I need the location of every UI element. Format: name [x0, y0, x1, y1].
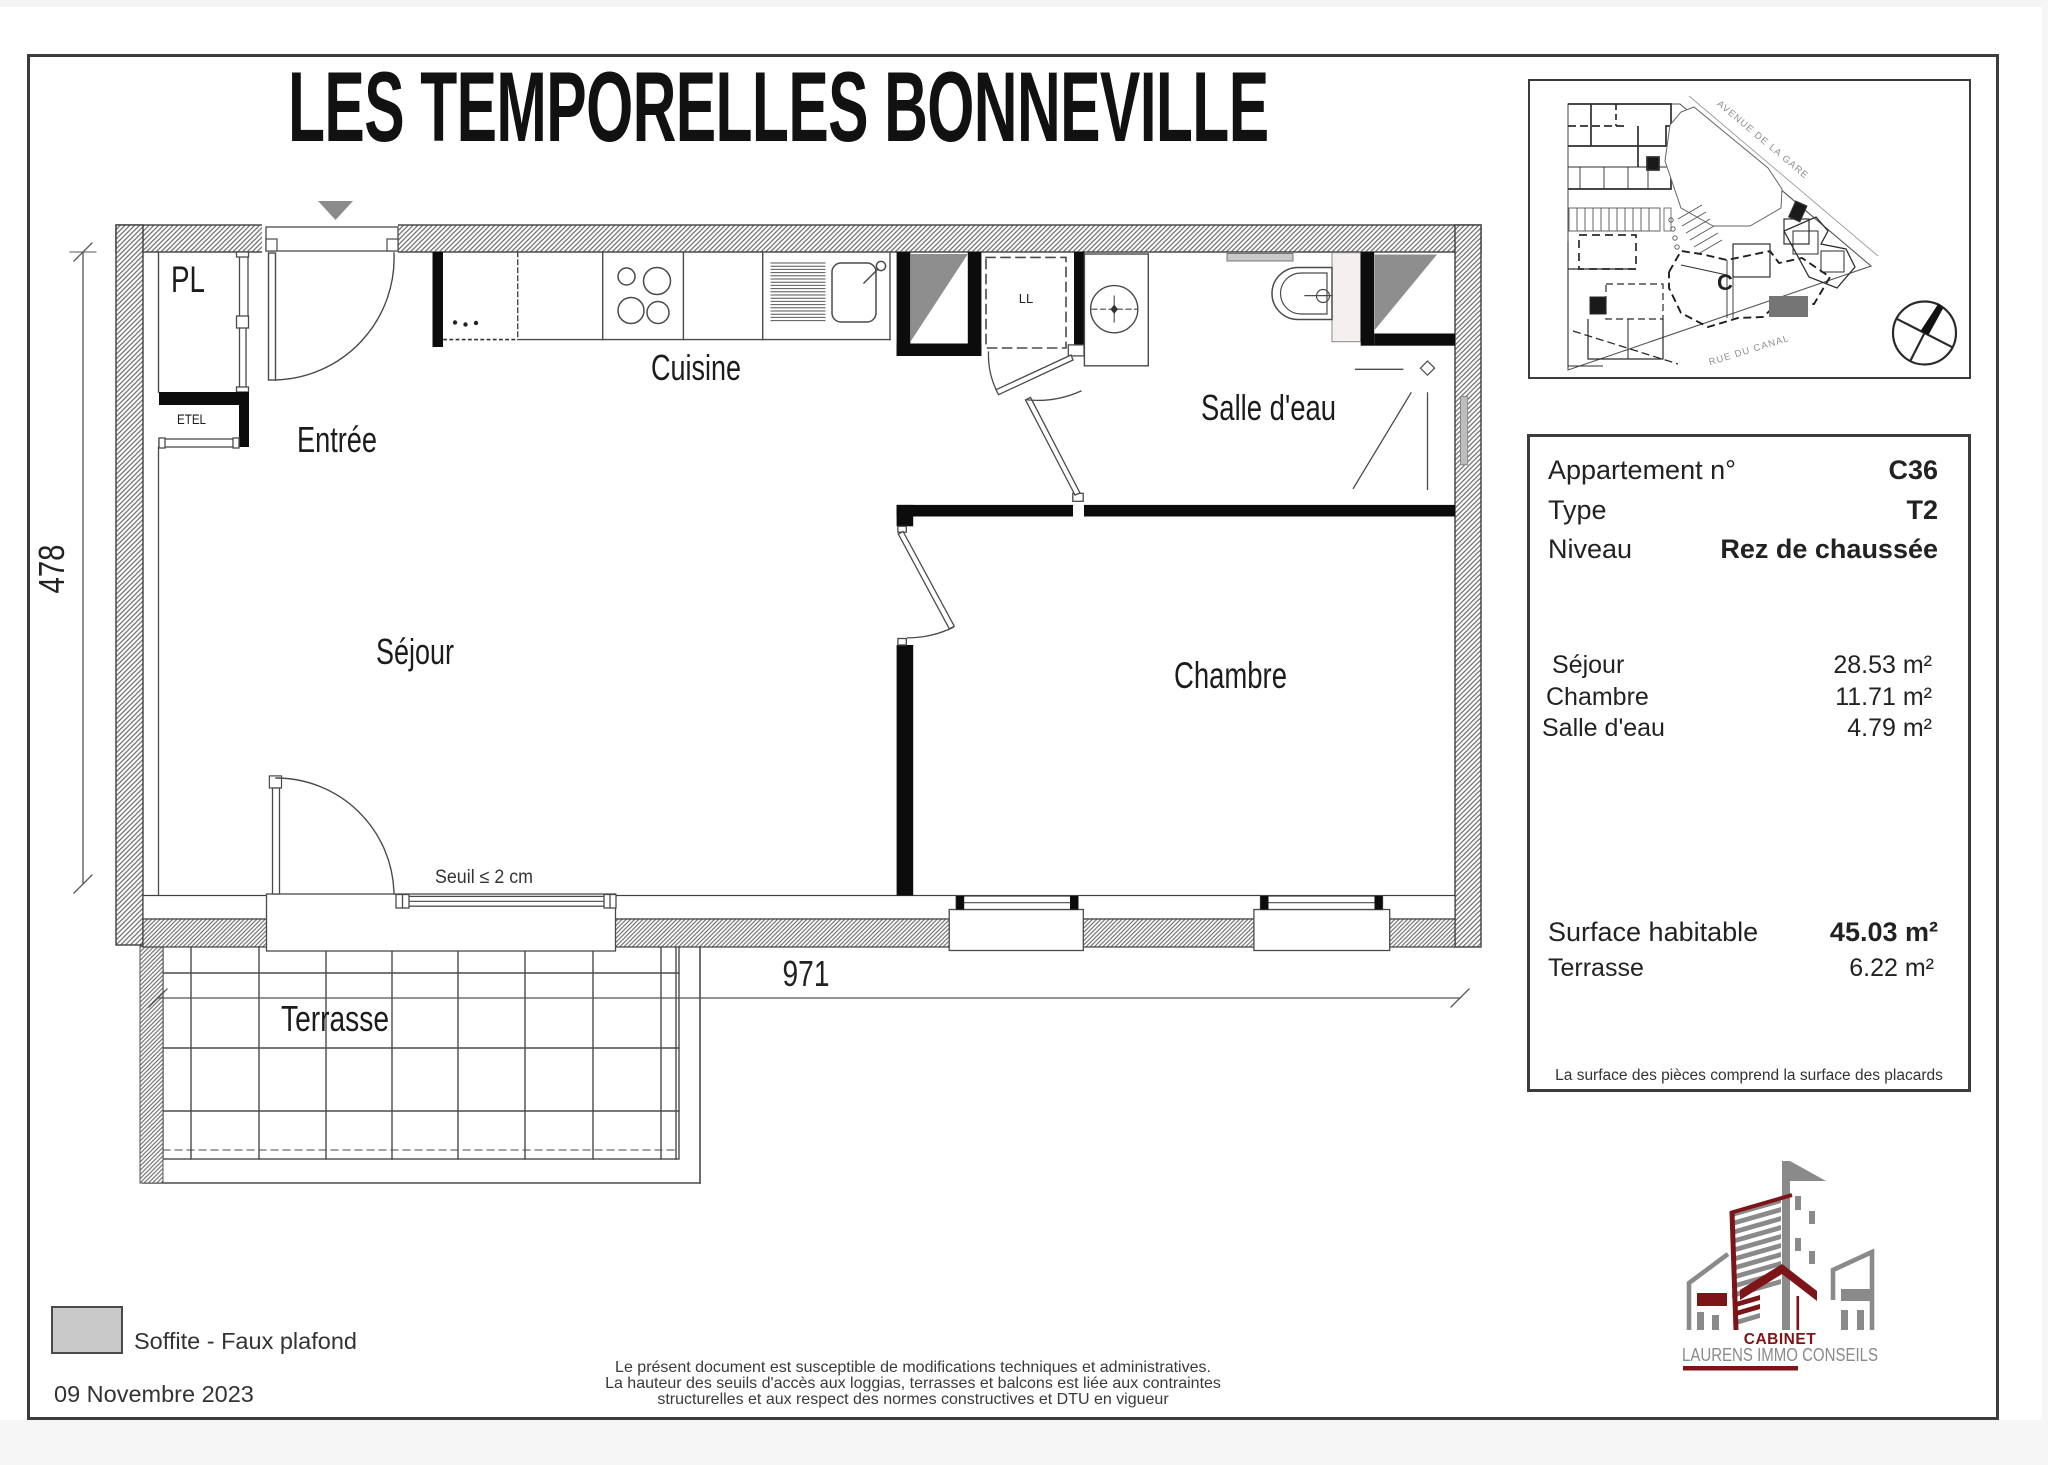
svg-text:Salle d'eau: Salle d'eau — [1201, 387, 1336, 428]
svg-text:Chambre: Chambre — [1174, 655, 1287, 696]
svg-text:ETEL: ETEL — [177, 411, 206, 427]
svg-text:Séjour: Séjour — [376, 631, 454, 672]
svg-text:LAURENS IMMO CONSEILS: LAURENS IMMO CONSEILS — [1682, 1345, 1878, 1365]
svg-text:478: 478 — [31, 545, 72, 594]
svg-text:Entrée: Entrée — [297, 419, 377, 460]
svg-text:Seuil ≤ 2 cm: Seuil ≤ 2 cm — [435, 867, 533, 888]
svg-text:C: C — [1717, 270, 1733, 295]
svg-text:PL: PL — [171, 259, 205, 300]
svg-text:Cuisine: Cuisine — [651, 347, 741, 388]
svg-text:971: 971 — [783, 953, 830, 994]
svg-text:Terrasse: Terrasse — [281, 998, 389, 1039]
svg-text:LL: LL — [1019, 291, 1033, 306]
